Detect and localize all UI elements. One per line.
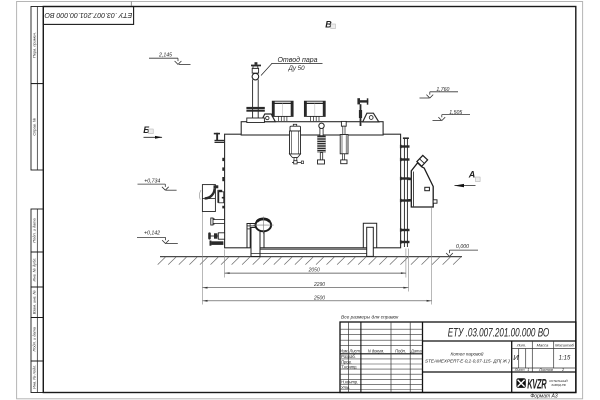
- svg-text:Т.контр.: Т.контр.: [341, 364, 358, 369]
- svg-text:Взам. инв. №: Взам. инв. №: [32, 289, 37, 314]
- svg-text:2500: 2500: [313, 295, 325, 301]
- svg-text:STEAMEXPERT-Е-0,2-0,07-115- ДП: STEAMEXPERT-Е-0,2-0,07-115- ДП( Ж ): [425, 359, 510, 364]
- svg-text:Ду 50: Ду 50: [287, 65, 305, 72]
- svg-text:ЗАВОД РФ: ЗАВОД РФ: [551, 383, 566, 387]
- svg-text:1: 1: [527, 368, 529, 372]
- svg-text:ЕТУ .03.007.201.00.000 ВО: ЕТУ .03.007.201.00.000 ВО: [44, 11, 132, 18]
- svg-text:Котел паровой: Котел паровой: [451, 351, 484, 357]
- svg-text:KVZR: KVZR: [527, 377, 546, 392]
- svg-text:Инв. № подл.: Инв. № подл.: [32, 365, 37, 389]
- svg-text:Изм.: Изм.: [340, 348, 349, 353]
- svg-text:Масштаб: Масштаб: [555, 343, 574, 348]
- svg-text:Перв. примен.: Перв. примен.: [32, 32, 37, 58]
- svg-text:Подп.: Подп.: [395, 348, 406, 353]
- svg-text:0,000: 0,000: [456, 244, 469, 250]
- svg-text:Листов: Листов: [538, 368, 553, 372]
- svg-text:Лист: Лист: [514, 368, 525, 372]
- svg-text:Инв. № дубл.: Инв. № дубл.: [32, 258, 37, 282]
- svg-text:Формат А3: Формат А3: [530, 394, 558, 400]
- svg-text:2050: 2050: [308, 268, 320, 274]
- svg-text:2,145: 2,145: [158, 53, 172, 59]
- svg-text:Утв.: Утв.: [341, 385, 350, 390]
- svg-text:А: А: [468, 170, 476, 180]
- svg-text:Подп. и дата: Подп. и дата: [31, 217, 36, 242]
- svg-text:+0,142: +0,142: [144, 231, 160, 237]
- svg-text:1:15: 1:15: [559, 355, 571, 361]
- svg-text:Лит.: Лит.: [516, 343, 526, 348]
- svg-text:Дата: Дата: [410, 348, 423, 353]
- svg-text:Отвод пара: Отвод пара: [277, 56, 317, 64]
- svg-text:ЕТУ .03.007.201.00.000 ВО: ЕТУ .03.007.201.00.000 ВО: [448, 327, 549, 340]
- svg-text:2290: 2290: [313, 282, 325, 288]
- svg-text:И: И: [513, 353, 519, 362]
- svg-text:Подп. и дата: Подп. и дата: [32, 326, 37, 351]
- svg-text:N докум.: N докум.: [368, 348, 385, 353]
- svg-text:Лист: Лист: [348, 348, 360, 353]
- svg-text:Все размеры для справок: Все размеры для справок: [341, 314, 399, 320]
- svg-text:Масса: Масса: [537, 343, 550, 348]
- svg-text:Справ. №: Справ. №: [31, 117, 36, 135]
